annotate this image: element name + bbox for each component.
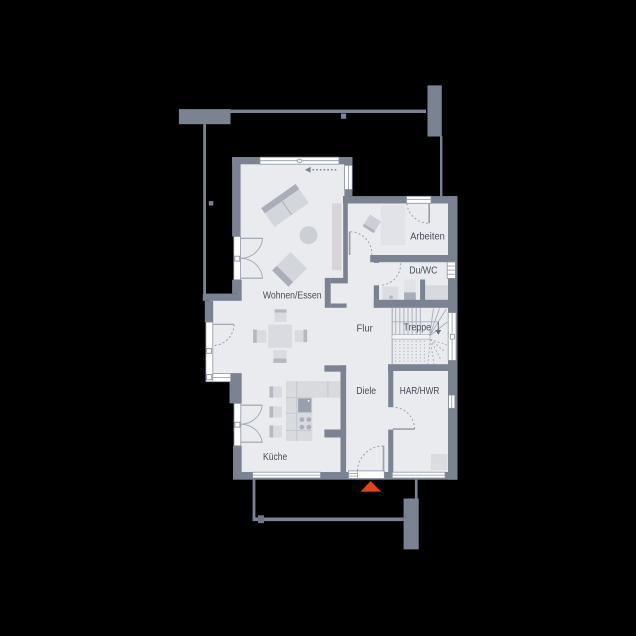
svg-text:Wohnen/Essen: Wohnen/Essen bbox=[263, 290, 322, 301]
svg-text:Treppe: Treppe bbox=[404, 322, 432, 333]
svg-text:Du/WC: Du/WC bbox=[409, 266, 437, 277]
svg-text:Arbeiten: Arbeiten bbox=[410, 232, 445, 243]
svg-text:Flur: Flur bbox=[357, 324, 374, 335]
svg-text:HAR/HWR: HAR/HWR bbox=[400, 386, 440, 397]
svg-text:Küche: Küche bbox=[263, 452, 287, 463]
svg-text:Diele: Diele bbox=[356, 386, 376, 397]
